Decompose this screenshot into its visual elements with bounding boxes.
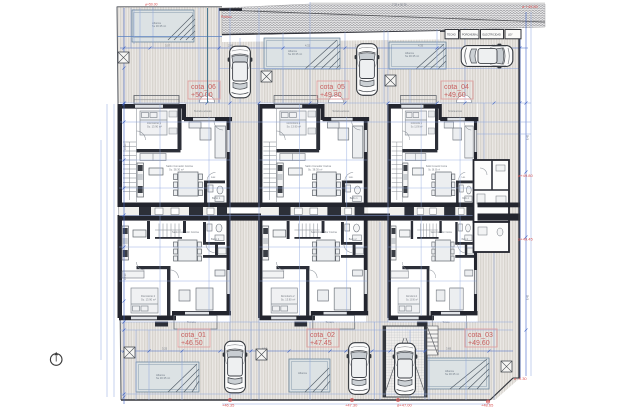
svg-text:3.65: 3.65 xyxy=(446,347,452,351)
svg-text:LEY: LEY xyxy=(508,34,513,37)
svg-text:Su 30.35 m²: Su 30.35 m² xyxy=(152,24,166,28)
svg-text:PORCHE/BAL: PORCHE/BAL xyxy=(462,34,479,37)
svg-text:6.45: 6.45 xyxy=(526,294,530,300)
svg-text:cota_05: cota_05 xyxy=(320,84,345,91)
svg-text:⌀ -9.30: ⌀ -9.30 xyxy=(514,376,527,381)
svg-text:+49.80: +49.80 xyxy=(320,92,342,99)
svg-text:+49.60: +49.60 xyxy=(444,92,466,99)
svg-text:⌀+49.45: ⌀+49.45 xyxy=(518,237,534,242)
svg-text:3.07: 3.07 xyxy=(165,44,171,48)
svg-text:Su 30.35 m²: Su 30.35 m² xyxy=(156,376,170,380)
svg-text:⌀ +49.80: ⌀ +49.80 xyxy=(522,4,539,9)
svg-text:⌀+49.80: ⌀+49.80 xyxy=(518,173,534,178)
svg-text:cota_01: cota_01 xyxy=(181,332,206,339)
svg-text:10.90: 10.90 xyxy=(123,143,127,150)
svg-text:+48.65: +48.65 xyxy=(481,403,494,408)
svg-text:Su 30.35 m²: Su 30.35 m² xyxy=(288,52,302,56)
svg-text:TECHO: TECHO xyxy=(447,34,456,37)
svg-text:4.32: 4.32 xyxy=(305,44,311,48)
svg-text:+46.35: +46.35 xyxy=(222,403,235,408)
svg-text:+50.00: +50.00 xyxy=(191,92,213,99)
svg-text:6.45: 6.45 xyxy=(526,134,530,140)
svg-text:cota_06: cota_06 xyxy=(191,84,216,91)
svg-text:7.35 × 30.76: 7.35 × 30.76 xyxy=(392,3,407,7)
svg-text:cota_04: cota_04 xyxy=(444,84,469,91)
svg-text:3.25: 3.25 xyxy=(162,347,168,351)
svg-text:+47.45: +47.45 xyxy=(310,340,332,347)
svg-text:ELECTRICIDAD: ELECTRICIDAD xyxy=(483,34,502,37)
svg-text:cota_03: cota_03 xyxy=(468,332,493,339)
svg-text:+49.60: +49.60 xyxy=(468,340,490,347)
svg-text:Su 30.35 m²: Su 30.35 m² xyxy=(405,54,419,58)
svg-text:⌀+50.00: ⌀+50.00 xyxy=(145,3,158,7)
svg-text:Alberca: Alberca xyxy=(298,371,307,375)
svg-text:10.90: 10.90 xyxy=(123,273,127,280)
svg-text:4.35: 4.35 xyxy=(418,44,424,48)
svg-text:+47.30: +47.30 xyxy=(345,403,358,408)
svg-text:+46.50: +46.50 xyxy=(181,340,203,347)
svg-text:Pórtico: Pórtico xyxy=(221,15,232,19)
svg-text:Su 30.35 m²: Su 30.35 m² xyxy=(445,372,459,376)
svg-text:cota_02: cota_02 xyxy=(310,332,335,339)
svg-text:⌀+47.00: ⌀+47.00 xyxy=(397,403,413,408)
